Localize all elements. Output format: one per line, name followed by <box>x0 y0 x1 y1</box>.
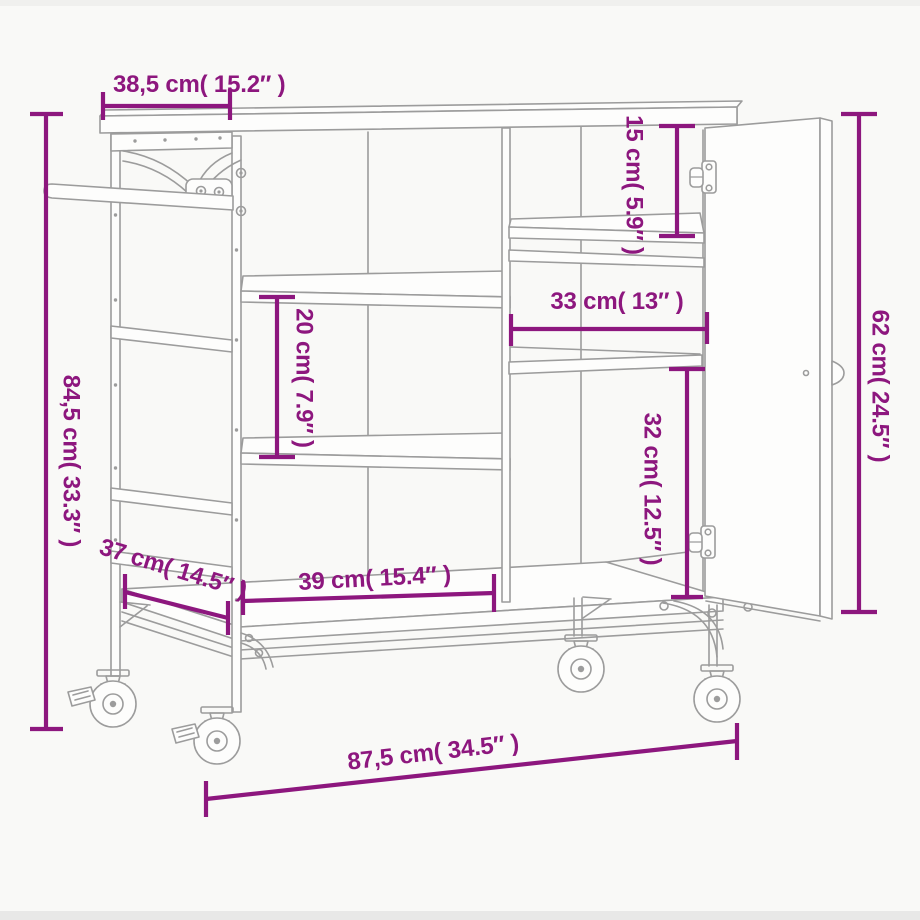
top-edge-band <box>0 0 920 6</box>
door <box>705 118 844 621</box>
trolley-diagram-canvas: 38,5 cm( 15.2″ ) 84,5 cm( 33.3″ ) 15 cm(… <box>0 0 920 920</box>
dim-label-middle-shelf-width: 33 cm( 13″ ) <box>550 288 683 315</box>
bottom-edge-band <box>0 911 920 920</box>
dim-label-door-height: 62 cm( 24.5″ ) <box>867 310 894 463</box>
dim-label-shelf-spacing: 20 cm( 7.9″ ) <box>291 308 318 448</box>
dimension-diagram: 38,5 cm( 15.2″ ) 84,5 cm( 33.3″ ) 15 cm(… <box>0 0 920 920</box>
dim-label-top-shelf-height: 15 cm( 5.9″ ) <box>621 115 648 255</box>
dim-label-top-depth: 38,5 cm( 15.2″ ) <box>113 71 285 98</box>
shelf-upper <box>241 271 510 308</box>
dim-label-overall-height: 84,5 cm( 33.3″ ) <box>58 375 85 547</box>
shelf-lower <box>241 433 510 470</box>
dim-label-cabinet-inner-height: 32 cm( 12.5″ ) <box>639 413 666 566</box>
